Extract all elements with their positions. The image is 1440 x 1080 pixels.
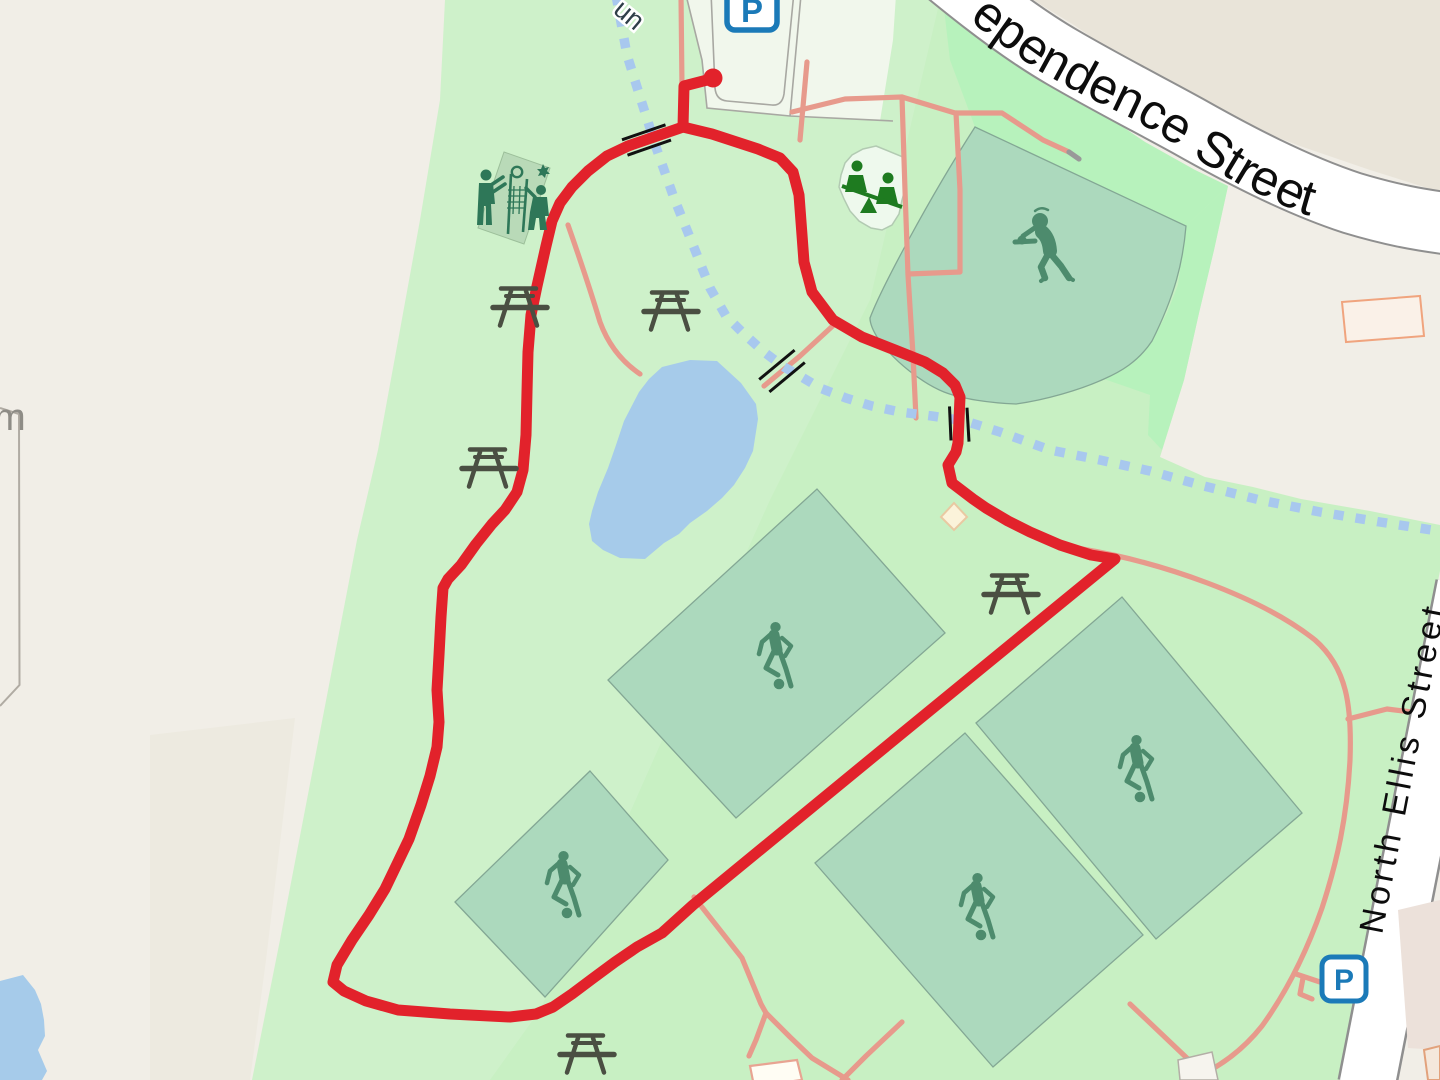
svg-text:P: P (1334, 964, 1354, 997)
svg-text:m: m (0, 397, 26, 439)
svg-text:P: P (741, 0, 763, 29)
